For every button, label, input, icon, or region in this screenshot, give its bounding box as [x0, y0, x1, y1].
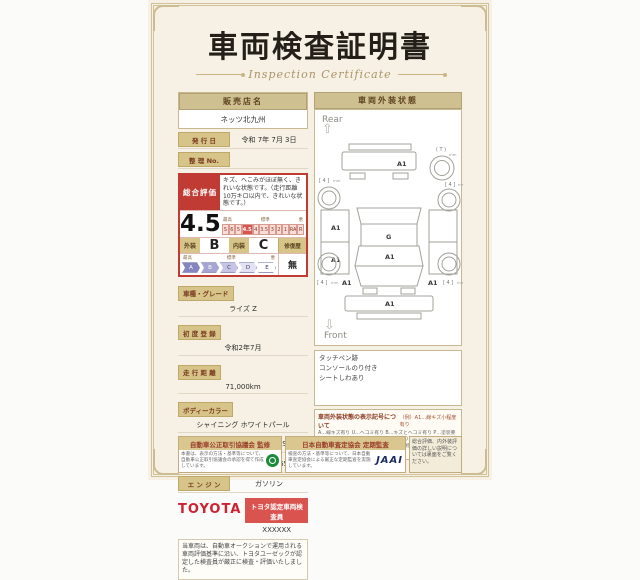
car-exterior-diagram: ( T ) mm A1 [ 4 ] mm — [315, 142, 463, 322]
spec-value: ライズ Z — [178, 301, 308, 317]
tire-unit: mm — [449, 152, 457, 157]
issue-date-value: 令和 7年 7月 3日 — [230, 135, 308, 145]
dealer-name: ネッツ北九州 — [179, 110, 307, 128]
tire-tread-label: [ 4 ] — [317, 280, 327, 286]
letter-cell: D — [239, 262, 257, 273]
overall-rating-box: 総合評価 キズ、へこみがほぼ無く、きれいな状態です。（走行距離10万キロ以内で、… — [178, 173, 308, 277]
note-item: コンソールのり付き — [319, 364, 457, 374]
issue-date-label: 発 行 日 — [178, 132, 230, 147]
inspection-disclaimer: 当車両は、自動車オークションで運用される車両評価基準に沿い、トヨタユーゼックが認… — [178, 539, 308, 579]
spec-value: 71,000km — [178, 380, 308, 394]
ref-no-row: 整 理 No. — [178, 152, 308, 169]
legend-title: 車両外装状態の表示記号について — [318, 412, 397, 430]
up-arrow-icon: ⇧ — [322, 125, 343, 135]
tire-tread-label: [ 4 ] — [445, 182, 455, 188]
left-quarter-mark: A1 — [331, 224, 341, 232]
spec-value: ガソリン — [230, 479, 308, 489]
front-lip — [357, 313, 421, 319]
letter-scale: 最高 標準 悪 A B C D E — [180, 254, 278, 275]
rear-direction-tag: Rear ⇧ — [322, 115, 343, 135]
jaai-logo: JAAI — [376, 455, 403, 466]
front-direction-tag: ⇩ Front — [324, 321, 347, 341]
flourish-left — [196, 74, 242, 75]
letter-cell: E — [258, 262, 276, 273]
overall-rating-label: 総合評価 — [180, 175, 220, 210]
spare-tire-label: ( T ) — [436, 147, 446, 153]
rating-score: 4.5 — [180, 211, 220, 237]
rating-scale: 最高 標準 悪 S 6 5 4.5 4 3.5 3 — [220, 216, 306, 237]
rear-left-wheel-inner — [322, 191, 336, 205]
title-block: 車両検査証明書 Inspection Certificate — [148, 22, 492, 81]
front-right-wheel-inner — [442, 257, 456, 271]
spec-mileage: 走 行 距 離 71,000km — [178, 360, 308, 394]
down-arrow-icon: ⇩ — [324, 321, 347, 331]
spec-label: エ ン ジ ン — [178, 476, 230, 491]
scale-cell: RA — [289, 224, 298, 235]
certificate: 車両検査証明書 Inspection Certificate 販売店名 ネッツ北… — [148, 0, 492, 480]
letter-cell: A — [182, 262, 200, 273]
spec-model-grade: 車種・グレード ライズ Z — [178, 281, 308, 317]
roof-mark: G — [386, 233, 391, 241]
exterior-diagram-panel: Rear ⇧ ( T ) mm A1 — [314, 109, 462, 346]
front-label: Front — [324, 331, 347, 341]
ref-no-label: 整 理 No. — [178, 152, 230, 167]
dealer-label: 販売店名 — [179, 93, 307, 110]
spec-body-color: ボディーカラー シャイニング ホワイトパール — [178, 398, 308, 434]
tail-light-right — [393, 173, 408, 179]
certified-inspector-badge: トヨタ認定車両検査員 — [245, 498, 308, 523]
rear-window — [357, 208, 421, 224]
repair-history-value: 無 — [278, 254, 306, 275]
scale-cells: S 6 5 4.5 4 3.5 3 2 1 RA R — [222, 224, 304, 235]
interior-grade: C — [249, 238, 278, 253]
front-bumper-mark: A1 — [385, 300, 395, 308]
letter-cell: B — [201, 262, 219, 273]
note-item: シートしわあり — [319, 374, 457, 384]
front-left-wheel-inner — [322, 257, 336, 271]
jaai-body: 検査の方法・基準等について、日本自動車査定協会による厳正な定期監査を実施していま… — [288, 452, 374, 470]
spec-label: 走 行 距 離 — [178, 365, 221, 380]
dealer-box: 販売店名 ネッツ北九州 — [178, 92, 308, 129]
rear-right-wheel-inner — [442, 193, 456, 207]
certificate-title: 車両検査証明書 — [148, 22, 492, 66]
spec-engine-row: エ ン ジ ン ガソリン — [178, 476, 308, 493]
legend-example: （例）A1…線キズ小程度有り — [400, 414, 458, 428]
tire-unit: mm — [333, 178, 341, 183]
tire-unit: mm — [331, 280, 339, 285]
scale-cell: R — [297, 224, 304, 235]
spec-value: シャイニング ホワイトパール — [178, 417, 308, 433]
rear-left-wheel — [318, 187, 340, 209]
spec-value: 令和2年7月 — [178, 340, 308, 356]
rear-bumper-mark: A1 — [397, 160, 407, 168]
scale-cell-selected: 4.5 — [242, 224, 253, 235]
scale-label-best: 最高 — [183, 255, 192, 261]
exterior-panel-header: 車両外装状態 — [314, 92, 462, 109]
fair-trade-title: 自動車公正取引協議会 監修 — [179, 437, 281, 450]
flourish-right — [398, 74, 444, 75]
scale-label-mid: 標準 — [261, 217, 270, 223]
corner-ornament — [461, 449, 487, 475]
spare-tire — [430, 156, 454, 180]
right-rear-quarter-panel — [429, 210, 457, 242]
left-fender-mark: A1 — [342, 279, 352, 287]
corner-ornament — [153, 449, 179, 475]
jaai-title: 日本自動車査定協会 定期監査 — [286, 437, 405, 450]
scale-label-best: 最高 — [223, 217, 232, 223]
rear-right-wheel — [438, 189, 460, 211]
tire-unit: mm — [458, 182, 463, 187]
scale-cell: 3.5 — [259, 224, 269, 235]
fair-trade-block: 自動車公正取引協議会 監修 本書は、表示の方法・基準等について、自動車公正取引協… — [178, 436, 282, 473]
rating-comment: キズ、へこみがほぼ無く、きれいな状態です。（走行距離10万キロ以内で、きれいな状… — [220, 175, 306, 210]
exterior-label: 外装 — [180, 238, 200, 253]
windshield-mark: A1 — [385, 253, 395, 261]
back-side-note: 総合評価、内外装評価の詳しい説明については裏面をご覧ください。 — [409, 436, 462, 473]
issue-date-row: 発 行 日 令和 7年 7月 3日 — [178, 132, 308, 149]
letter-cell: C — [220, 262, 238, 273]
note-item: タッチペン跡 — [319, 354, 457, 364]
interior-label: 内装 — [229, 238, 249, 253]
rear-deck — [349, 144, 411, 150]
inspector-block: TOYOTA トヨタ認定車両検査員 XXXXXX — [178, 498, 308, 534]
tire-unit: mm — [457, 280, 463, 285]
headlight-left — [363, 288, 377, 294]
right-fender-mark: A1 — [428, 279, 438, 287]
certificate-subtitle: Inspection Certificate — [248, 68, 391, 81]
headlight-right — [401, 288, 415, 294]
scale-label-mid: 標準 — [227, 255, 236, 261]
fair-trade-body: 本書は、表示の方法・基準等について、自動車公正取引協議会の承認を得て作成していま… — [181, 452, 264, 470]
fair-trade-council-logo — [266, 454, 279, 467]
spec-label: ボディーカラー — [178, 402, 233, 417]
jaai-block: 日本自動車査定協会 定期監査 検査の方法・基準等について、日本自動車査定協会によ… — [285, 436, 406, 473]
tire-tread-label: [ 4 ] — [319, 178, 329, 184]
inspector-code: XXXXXX — [245, 526, 308, 534]
spare-tire-inner — [435, 161, 450, 176]
tire-tread-label: [ 4 ] — [443, 280, 453, 286]
exterior-grade: B — [200, 238, 229, 253]
spec-first-registration: 初 度 登 録 令和2年7月 — [178, 321, 308, 357]
right-column: 車両外装状態 Rear ⇧ ( T ) mm — [314, 92, 462, 460]
repair-history-label: 修復歴 — [278, 238, 306, 253]
condition-notes: タッチペン跡 コンソールのり付き シートしわあり — [314, 350, 462, 406]
spec-label: 車種・グレード — [178, 286, 234, 301]
left-column: 販売店名 ネッツ北九州 発 行 日 令和 7年 7月 3日 整 理 No. 総合… — [178, 92, 308, 580]
scale-label-worst: 悪 — [299, 217, 304, 223]
page: 車両検査証明書 Inspection Certificate 販売店名 ネッツ北… — [0, 0, 640, 480]
toyota-logo: TOYOTA — [178, 498, 241, 517]
spec-label: 初 度 登 録 — [178, 325, 221, 340]
certificate-footer: 自動車公正取引協議会 監修 本書は、表示の方法・基準等について、自動車公正取引協… — [178, 436, 462, 473]
scale-label-worst: 悪 — [271, 255, 276, 261]
hood-panel — [355, 266, 423, 286]
tail-light-left — [350, 173, 365, 179]
